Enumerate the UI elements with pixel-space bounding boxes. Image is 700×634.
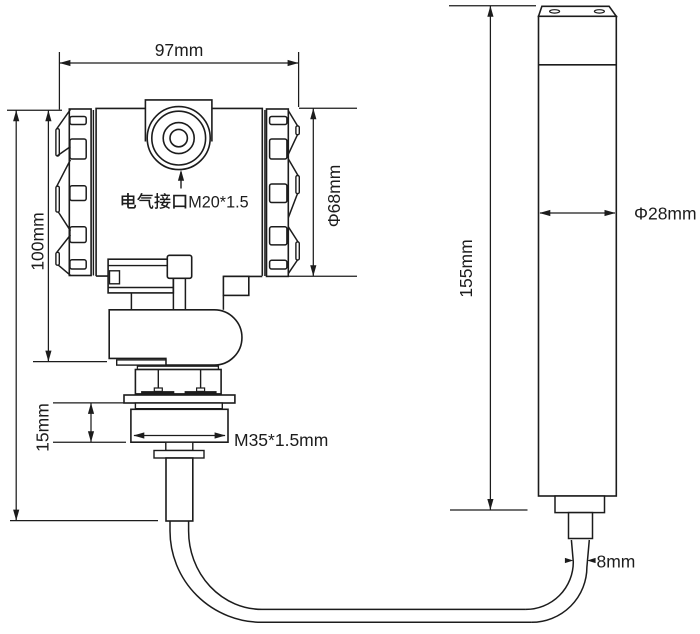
svg-text:M20*1.5: M20*1.5: [188, 194, 248, 212]
svg-text:8mm: 8mm: [597, 552, 636, 572]
svg-text:97mm: 97mm: [155, 40, 204, 60]
svg-text:M35*1.5mm: M35*1.5mm: [234, 430, 328, 450]
svg-text:Φ68mm: Φ68mm: [324, 165, 344, 228]
svg-text:155mm: 155mm: [456, 239, 476, 297]
svg-text:Φ28mm: Φ28mm: [634, 204, 697, 224]
svg-text:100mm: 100mm: [28, 212, 48, 270]
svg-text:15mm: 15mm: [33, 403, 53, 452]
